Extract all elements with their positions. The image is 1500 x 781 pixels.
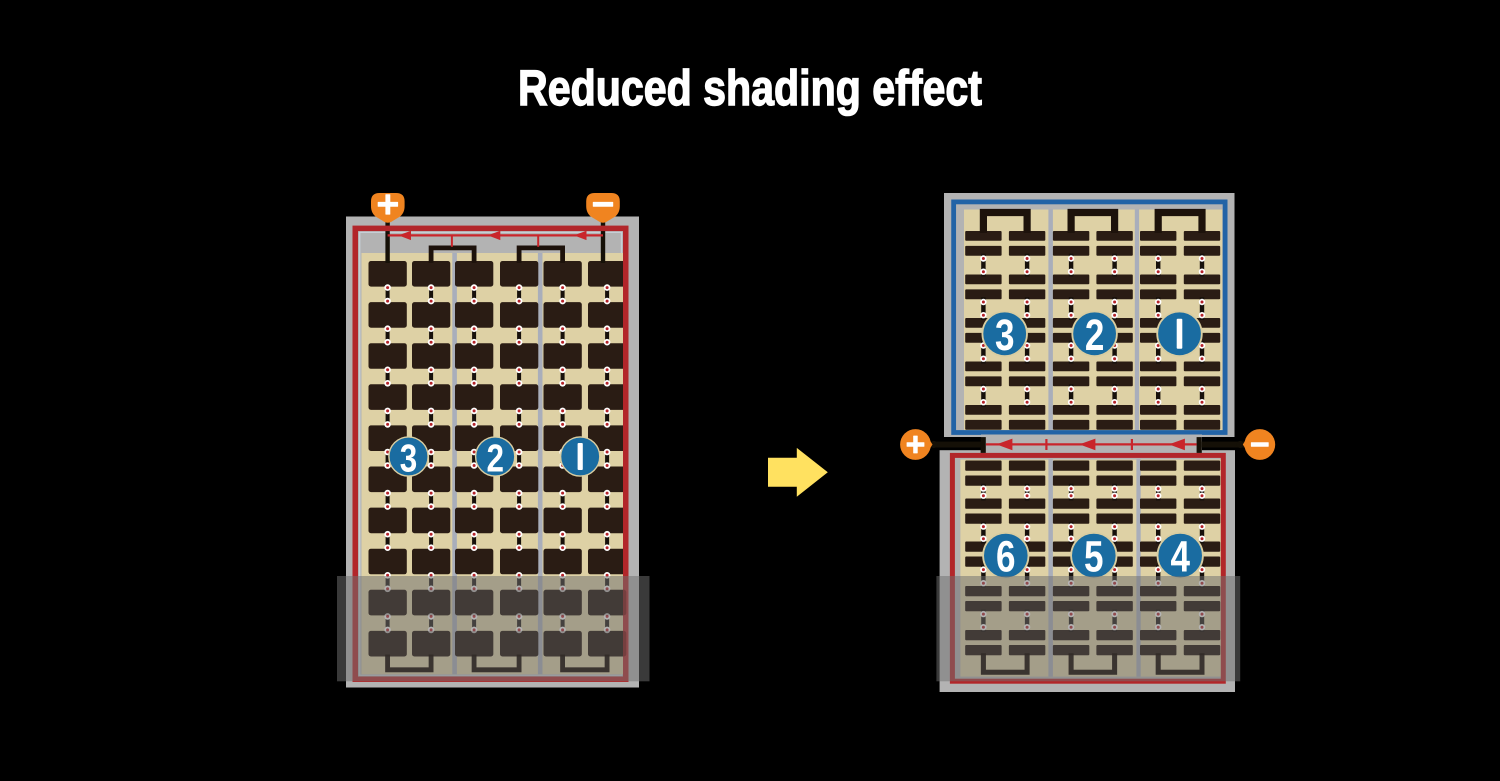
svg-text:3: 3 bbox=[400, 437, 418, 480]
svg-text:2: 2 bbox=[1085, 311, 1105, 360]
svg-text:3: 3 bbox=[995, 311, 1015, 360]
svg-text:6: 6 bbox=[996, 533, 1016, 582]
svg-text:4: 4 bbox=[1170, 533, 1190, 582]
svg-text:Reduced shading effect: Reduced shading effect bbox=[518, 60, 982, 116]
svg-text:2: 2 bbox=[486, 437, 504, 480]
svg-text:5: 5 bbox=[1084, 533, 1104, 582]
